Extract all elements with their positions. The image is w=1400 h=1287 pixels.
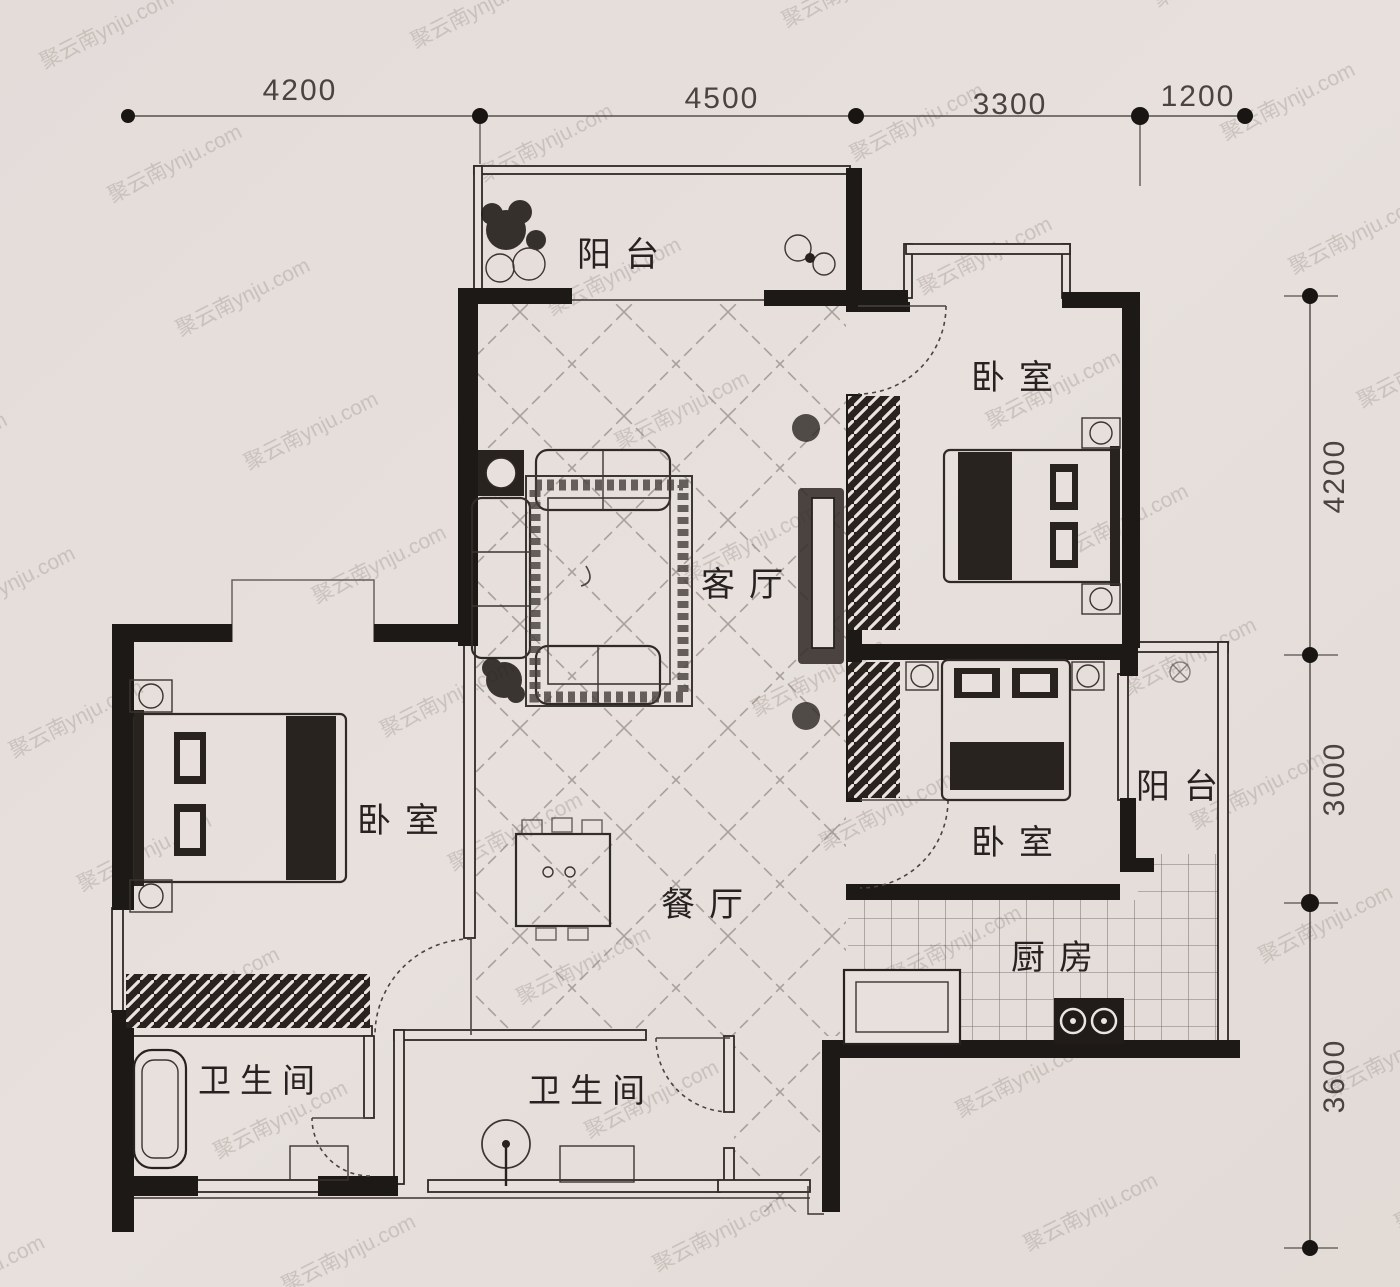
floorplan-canvas: 聚云南ynju.com (0, 0, 1400, 1287)
floorplan-page: 聚云南ynju.com (0, 0, 1400, 1287)
photo-tint (0, 0, 1400, 1287)
